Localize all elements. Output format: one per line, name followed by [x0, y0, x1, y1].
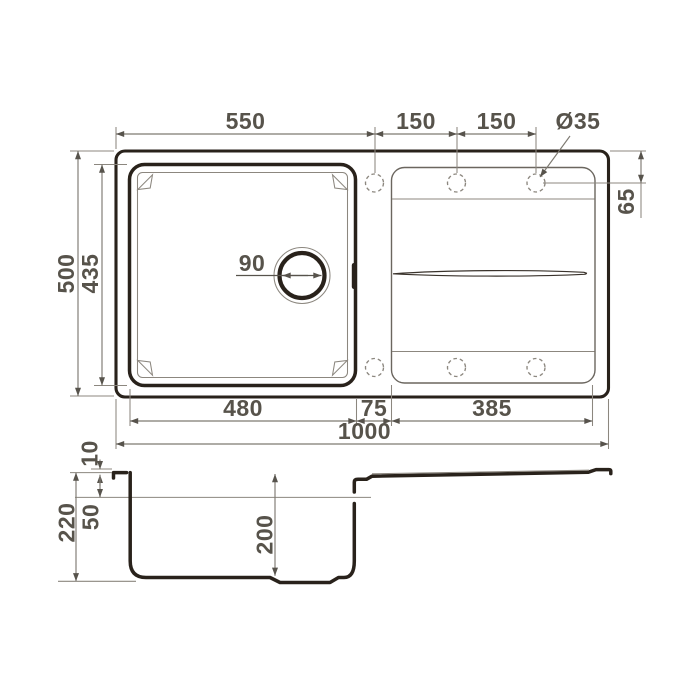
dim-label-150-left: 150 — [396, 108, 436, 134]
mount-hole-3 — [527, 174, 545, 192]
mount-hole-6 — [527, 359, 545, 377]
dim-label-385: 385 — [472, 395, 512, 421]
mount-hole-1 — [366, 174, 384, 192]
drawing-svg: 550 150 150 Ø35 65 500 435 90 480 75 385… — [0, 0, 700, 700]
plan-view — [116, 151, 609, 397]
mount-hole-5 — [448, 359, 466, 377]
leader-hole-diameter — [540, 136, 570, 177]
plan-dimensions — [70, 127, 646, 449]
dim-label-50: 50 — [78, 504, 104, 531]
dimension-labels: 550 150 150 Ø35 65 500 435 90 480 75 385… — [53, 108, 639, 554]
dim-label-150-right: 150 — [477, 108, 517, 134]
dim-label-90: 90 — [239, 250, 266, 276]
dim-label-200: 200 — [252, 515, 278, 555]
mount-hole-4 — [366, 359, 384, 377]
section-profile — [130, 470, 611, 583]
dim-label-220: 220 — [54, 503, 80, 543]
drainboard-groove — [393, 271, 587, 277]
dim-label-hole-diameter: Ø35 — [556, 108, 601, 134]
dim-label-10: 10 — [77, 440, 103, 467]
dim-label-65: 65 — [613, 188, 639, 215]
dim-label-1000: 1000 — [338, 418, 391, 444]
bowl-chamfer-bottom-right — [333, 361, 348, 376]
section-view — [75, 470, 611, 583]
dim-label-435: 435 — [77, 254, 103, 294]
dim-label-500: 500 — [53, 254, 79, 294]
overflow-notch — [352, 263, 357, 289]
mount-hole-2 — [448, 174, 466, 192]
dim-label-480: 480 — [223, 395, 263, 421]
dim-label-550: 550 — [226, 108, 266, 134]
section-left-rim — [114, 473, 127, 478]
sink-technical-drawing: 550 150 150 Ø35 65 500 435 90 480 75 385… — [0, 0, 700, 700]
bowl-chamfer-top-left — [138, 175, 153, 190]
bowl-chamfer-bottom-left — [138, 361, 153, 376]
bowl-chamfer-top-right — [333, 175, 348, 190]
